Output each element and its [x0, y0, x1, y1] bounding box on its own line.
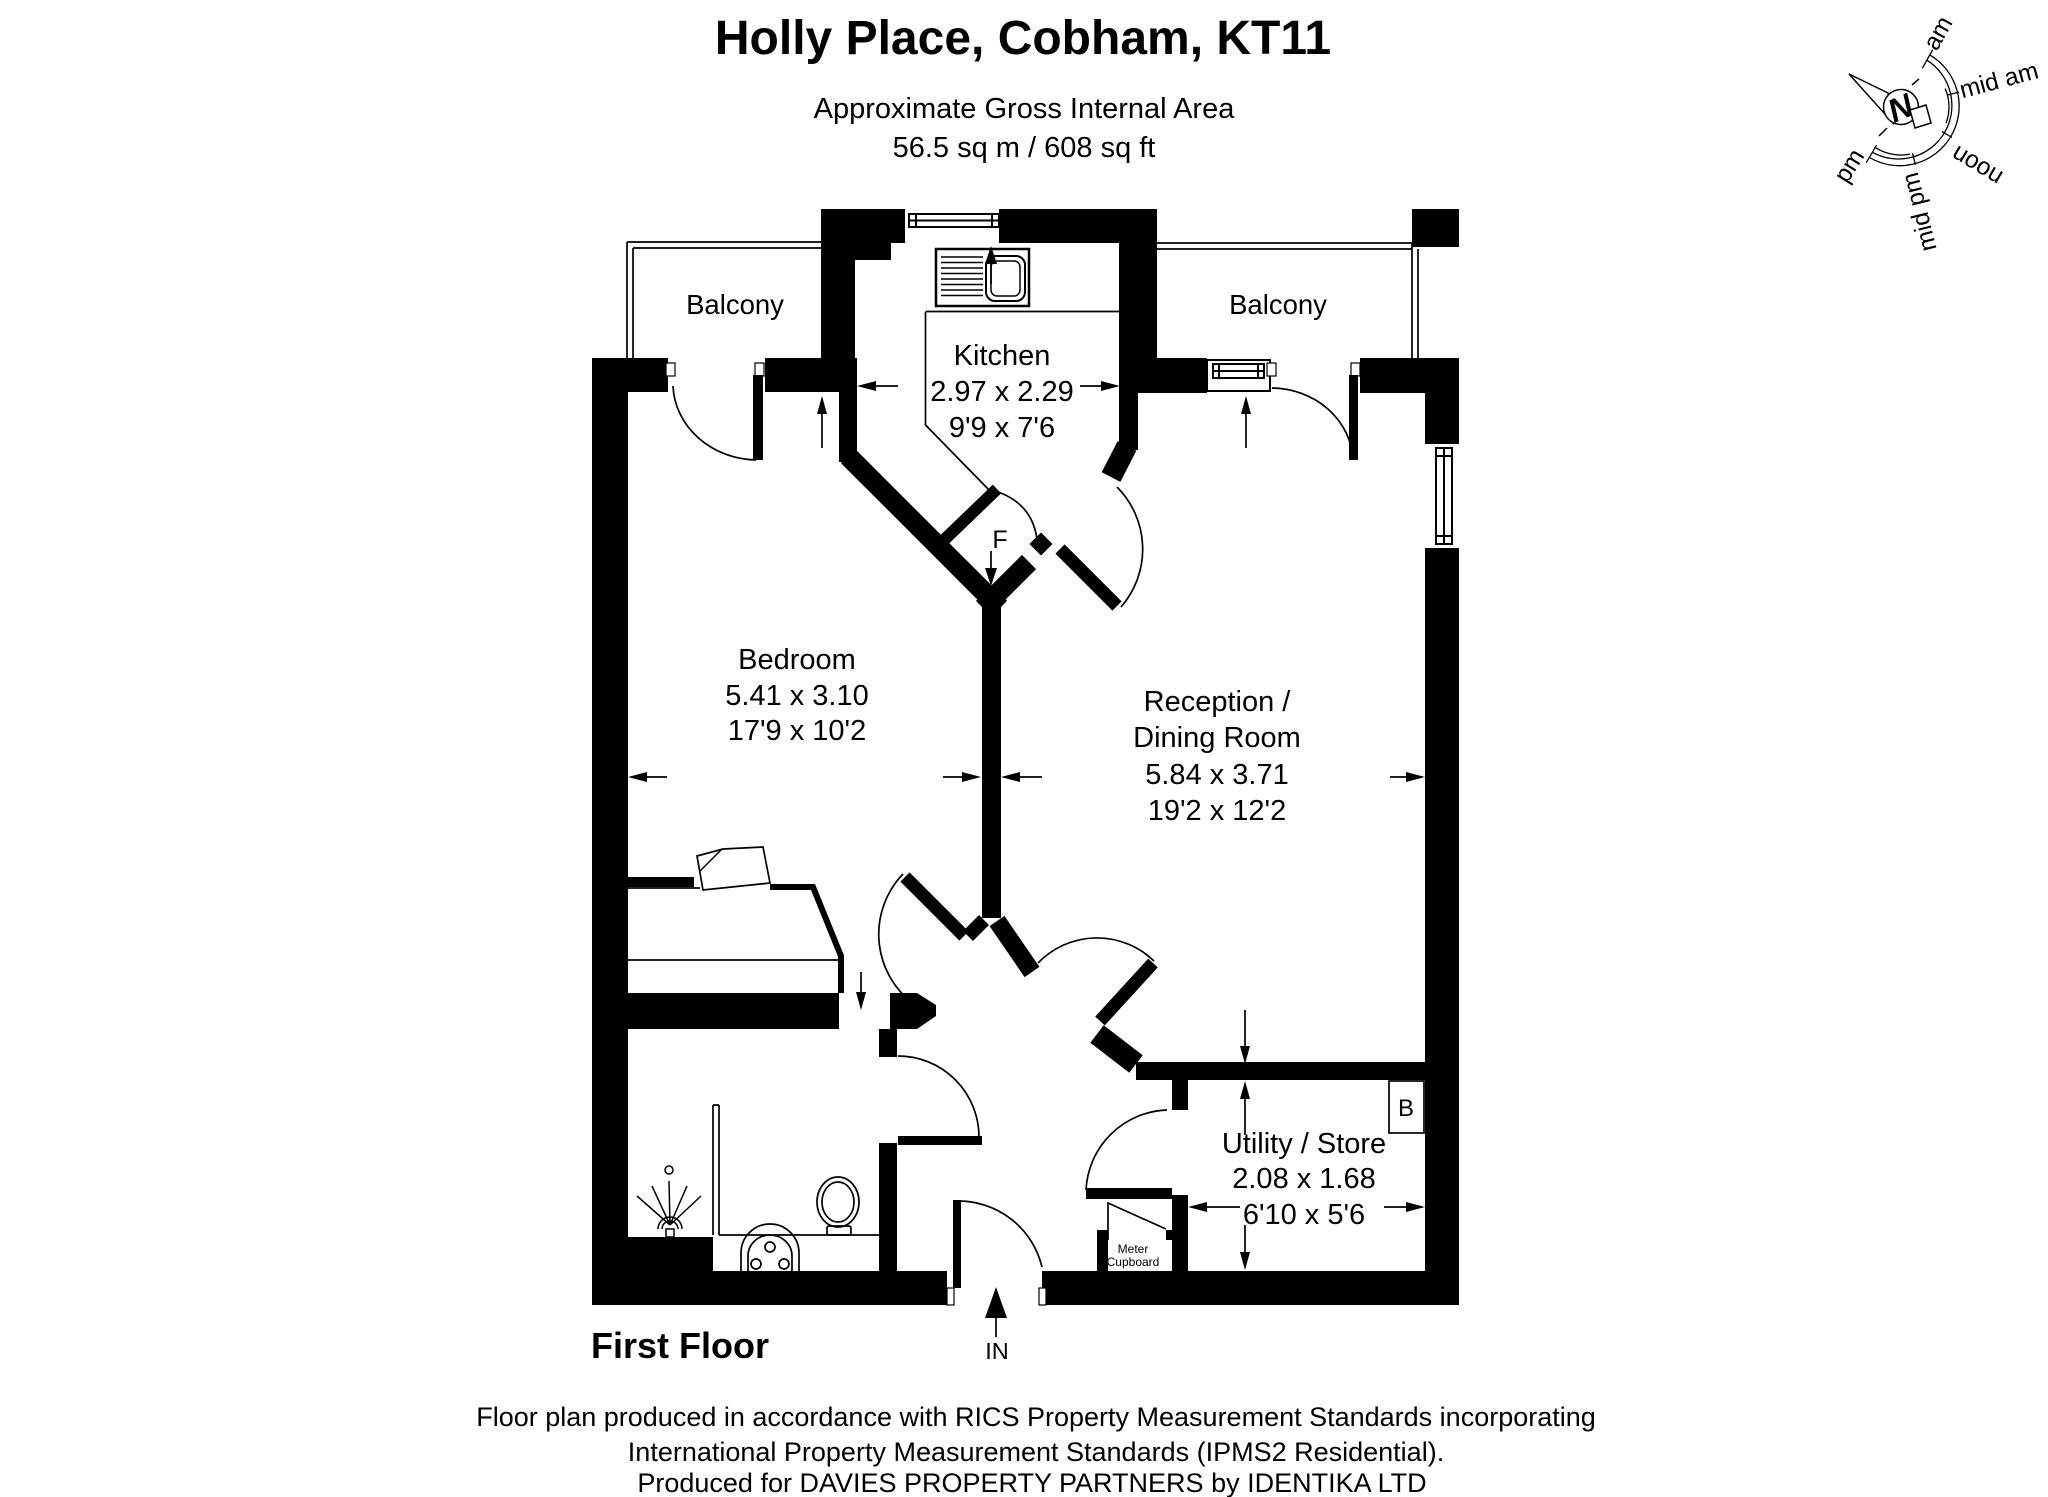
svg-text:Holly Place, Cobham, KT11: Holly Place, Cobham, KT11 — [715, 12, 1331, 65]
svg-text:5.84 x 3.71: 5.84 x 3.71 — [1145, 759, 1289, 791]
svg-text:Utility / Store: Utility / Store — [1222, 1128, 1386, 1160]
svg-text:2.97 x 2.29: 2.97 x 2.29 — [930, 376, 1074, 408]
svg-text:2.08 x 1.68: 2.08 x 1.68 — [1232, 1163, 1376, 1195]
svg-text:6'10 x 5'6: 6'10 x 5'6 — [1243, 1199, 1365, 1231]
svg-text:Balcony: Balcony — [1229, 289, 1327, 320]
svg-text:Balcony: Balcony — [686, 289, 784, 320]
svg-text:Cupboard: Cupboard — [1107, 1255, 1160, 1269]
svg-text:17'9 x 10'2: 17'9 x 10'2 — [728, 715, 866, 747]
svg-text:56.5 sq m / 608 sq ft: 56.5 sq m / 608 sq ft — [893, 132, 1156, 164]
svg-text:Dining Room: Dining Room — [1133, 722, 1301, 754]
svg-text:IN: IN — [985, 1338, 1009, 1364]
svg-text:Floor plan produced in accorda: Floor plan produced in accordance with R… — [476, 1402, 1596, 1432]
svg-text:5.41 x 3.10: 5.41 x 3.10 — [725, 680, 869, 712]
svg-text:9'9 x 7'6: 9'9 x 7'6 — [949, 412, 1055, 444]
svg-text:19'2 x 12'2: 19'2 x 12'2 — [1148, 795, 1286, 827]
svg-text:International Property Measure: International Property Measurement Stand… — [628, 1437, 1444, 1467]
svg-text:F: F — [992, 526, 1007, 554]
svg-text:Meter: Meter — [1118, 1242, 1149, 1256]
svg-text:Produced for DAVIES PROPERTY P: Produced for DAVIES PROPERTY PARTNERS by… — [637, 1468, 1426, 1497]
svg-text:Kitchen: Kitchen — [954, 340, 1051, 372]
svg-text:B: B — [1398, 1095, 1414, 1122]
svg-text:Approximate Gross Internal Are: Approximate Gross Internal Area — [814, 93, 1236, 125]
svg-text:Bedroom: Bedroom — [738, 644, 856, 676]
svg-text:Reception /: Reception / — [1144, 686, 1292, 718]
svg-text:First Floor: First Floor — [591, 1325, 769, 1366]
